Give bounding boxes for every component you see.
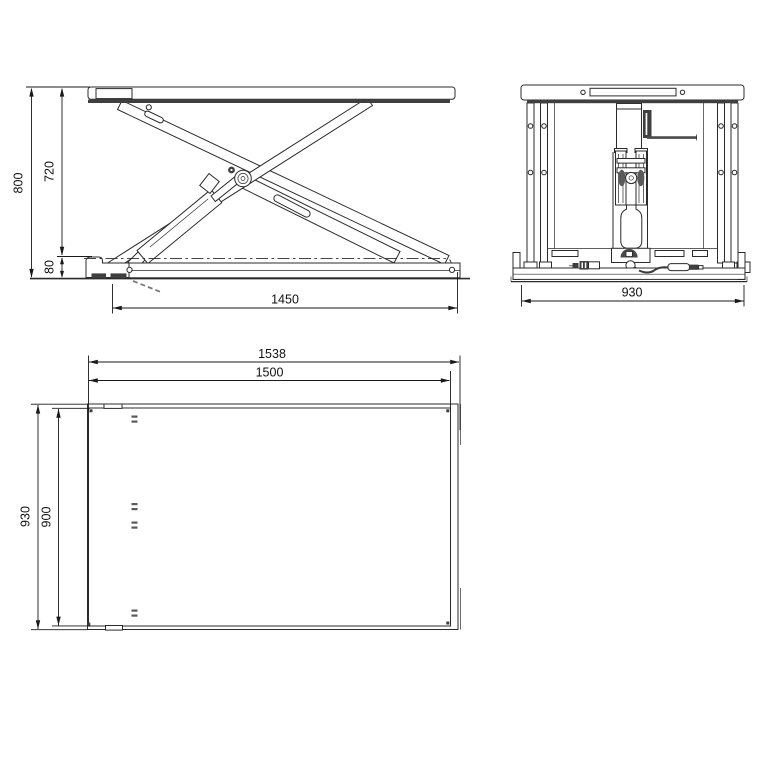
plan-hinge-notch-top — [104, 404, 122, 408]
front-arm-pin-hole — [146, 105, 151, 110]
plan-inner-rect — [89, 408, 451, 626]
side-view — [511, 85, 750, 282]
front-platform-insert — [96, 89, 132, 99]
dim-plan-length: 1500 — [89, 366, 451, 411]
dim-label-80: 80 — [43, 260, 57, 274]
dim-label-930-plan: 930 — [19, 506, 33, 527]
front-hydraulic-cylinder — [128, 171, 246, 269]
side-cylinder-bottle — [621, 205, 642, 248]
technical-drawing-canvas: 800 720 80 1450 — [0, 0, 770, 770]
dim-label-1538: 1538 — [258, 347, 286, 361]
side-hose-connector — [668, 264, 690, 271]
side-roller-center — [626, 172, 637, 183]
cylinder-clevis — [200, 174, 219, 194]
dim-label-720: 720 — [43, 161, 57, 182]
side-base-slot-right2 — [693, 251, 708, 257]
front-foot-pad-left — [92, 273, 107, 278]
plan-hinge-notch-bottom — [106, 626, 123, 631]
front-base-hole-left — [127, 267, 132, 272]
front-platform-underside — [88, 100, 450, 103]
dim-side-width: 930 — [522, 285, 745, 307]
front-foot-pad-right — [111, 273, 127, 278]
front-base-hole-right — [449, 267, 454, 272]
dim-travel-height: 720 — [43, 88, 93, 257]
front-platform-top — [88, 87, 455, 99]
side-base-frame — [513, 268, 745, 279]
side-platform-slot — [590, 88, 676, 96]
dim-label-1450: 1450 — [271, 293, 299, 307]
front-platform — [88, 87, 455, 103]
side-roller-right — [637, 170, 644, 186]
dim-label-800: 800 — [12, 173, 26, 194]
side-platform — [521, 85, 744, 103]
dim-label-900: 900 — [40, 507, 54, 528]
cylinder-body — [137, 190, 222, 264]
front-scissor-arm-inner — [235, 173, 400, 263]
front-view — [30, 87, 470, 293]
dim-plan-width: 900 — [40, 408, 91, 626]
side-platform-hole-right — [680, 90, 684, 94]
drawing-sheet: 800 720 80 1450 — [0, 0, 770, 770]
dim-lowered-height: 80 — [43, 257, 65, 278]
side-roller-left — [618, 170, 625, 186]
side-valve-assembly — [569, 261, 600, 270]
side-base-slot-left — [552, 251, 578, 257]
front-leader-dashed — [133, 281, 162, 293]
side-platform-hole-left — [581, 90, 585, 94]
dim-label-1500: 1500 — [256, 366, 284, 380]
side-lift-column — [612, 103, 698, 270]
plan-view — [87, 404, 460, 630]
side-platform-underside — [527, 100, 738, 103]
dim-label-930-side: 930 — [622, 286, 643, 300]
side-base-slot-right1 — [655, 251, 684, 257]
